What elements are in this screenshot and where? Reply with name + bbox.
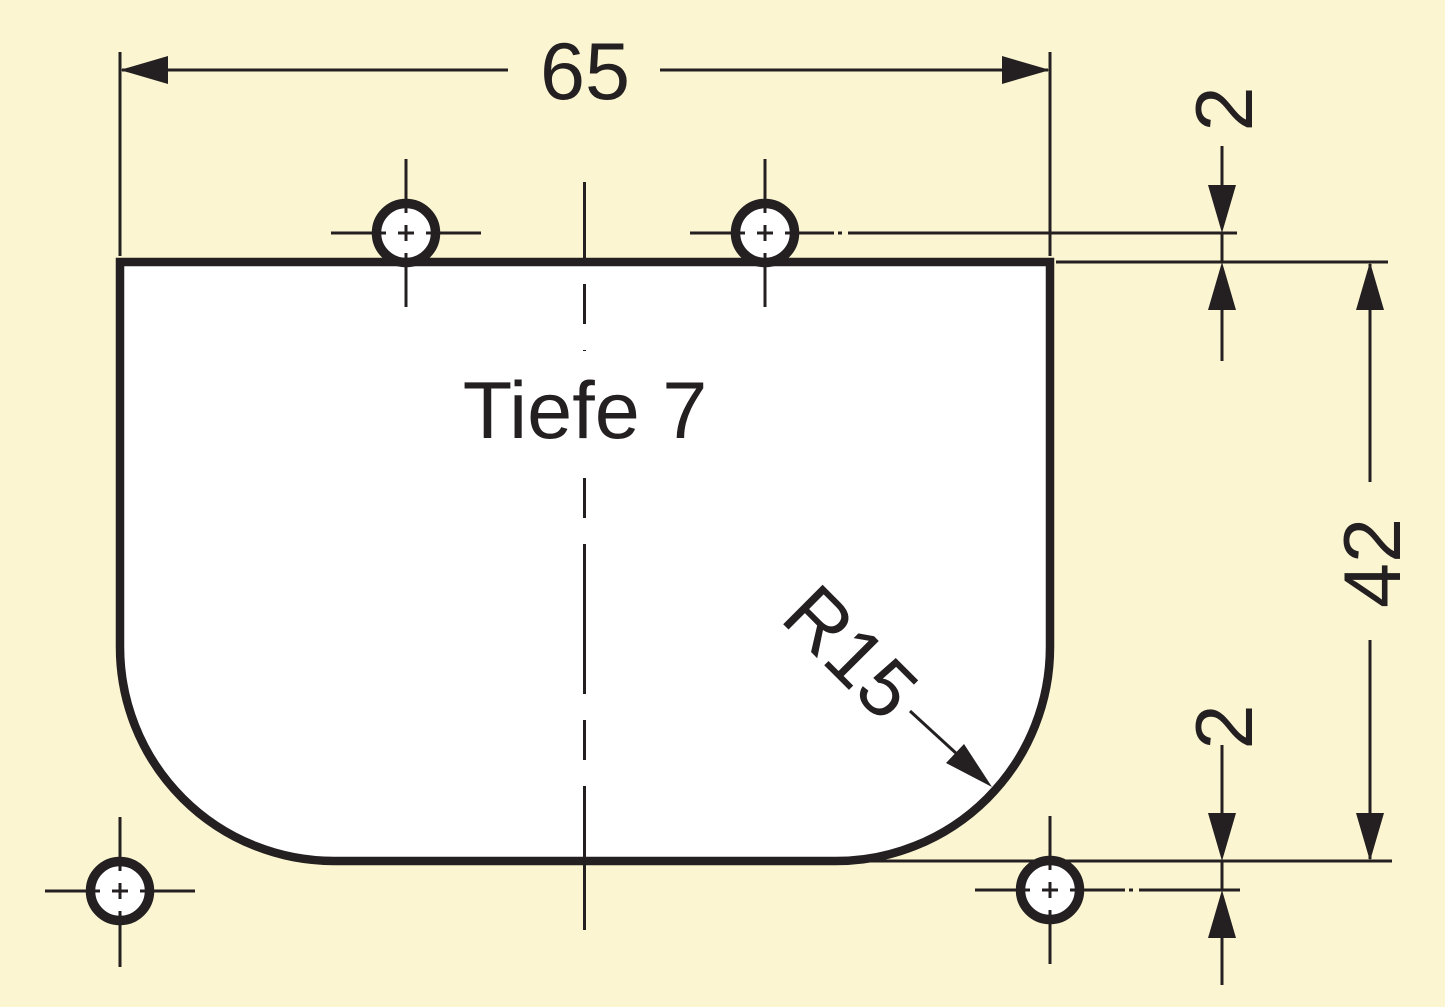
- height-dimension-label: 42: [1328, 518, 1418, 608]
- technical-drawing-canvas: 65 2 42 2 R15 Tiefe 7: [0, 0, 1445, 1007]
- bottom-offset-dimension-label: 2: [1180, 704, 1270, 749]
- top-offset-dimension-label: 2: [1180, 86, 1270, 131]
- width-dimension-label: 65: [540, 27, 630, 117]
- depth-label: Tiefe 7: [463, 366, 708, 456]
- technical-drawing-page: 65 2 42 2 R15 Tiefe 7: [0, 0, 1445, 1007]
